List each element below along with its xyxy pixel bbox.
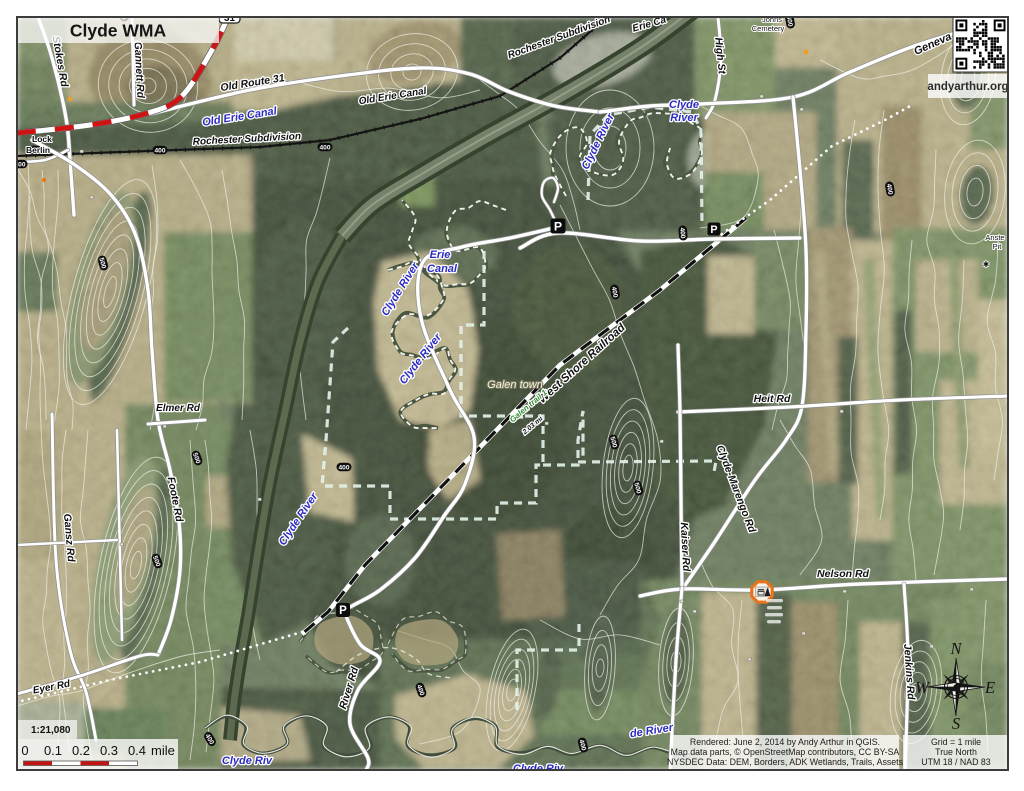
svg-text:Cemetery: Cemetery — [752, 24, 785, 33]
svg-text:Elmer Rd: Elmer Rd — [156, 403, 201, 414]
svg-text:Pit: Pit — [993, 242, 1003, 251]
svg-text:Galen town: Galen town — [487, 379, 543, 391]
svg-text:✱: ✱ — [983, 260, 990, 269]
svg-text:P: P — [710, 224, 717, 236]
svg-text:0.1: 0.1 — [44, 743, 62, 758]
svg-text:P: P — [339, 605, 347, 617]
svg-text:Anste: Anste — [985, 233, 1004, 242]
svg-text:E: E — [984, 678, 995, 697]
svg-text:andyarthur.org: andyarthur.org — [927, 81, 1008, 93]
svg-text:400: 400 — [338, 464, 349, 471]
svg-text:S: S — [952, 714, 960, 733]
svg-text:Canal: Canal — [427, 263, 458, 275]
svg-text:N: N — [949, 639, 962, 658]
svg-text:mile: mile — [151, 743, 175, 758]
svg-text:Clyde WMA: Clyde WMA — [70, 21, 167, 41]
svg-text:Clyde: Clyde — [669, 99, 699, 111]
svg-text:Berlin: Berlin — [26, 145, 50, 155]
svg-text:W: W — [915, 678, 930, 697]
svg-text:400: 400 — [319, 144, 330, 151]
svg-text:River: River — [670, 112, 698, 124]
svg-text:NYSDEC Data: DEM, Borders, ADK: NYSDEC Data: DEM, Borders, ADK Wetlands,… — [667, 757, 904, 767]
svg-text:Rendered: June 2, 2014 by And: Rendered: June 2, 2014 by Andy Arthur in… — [690, 737, 880, 747]
svg-text:1:21,080: 1:21,080 — [31, 725, 71, 736]
svg-text:0: 0 — [21, 743, 28, 758]
svg-text:400: 400 — [678, 227, 686, 239]
svg-text:0.3: 0.3 — [100, 743, 118, 758]
svg-text:Heit Rd: Heit Rd — [754, 393, 791, 405]
svg-text:Lock: Lock — [32, 134, 52, 144]
svg-text:UTM 18 / NAD 83: UTM 18 / NAD 83 — [921, 757, 991, 767]
svg-text:Nelson Rd: Nelson Rd — [817, 568, 870, 580]
svg-text:P: P — [554, 219, 562, 233]
svg-text:Erie: Erie — [430, 249, 451, 261]
svg-text:400: 400 — [154, 147, 165, 154]
svg-text:Clyde Riv: Clyde Riv — [222, 755, 273, 767]
svg-text:0.2: 0.2 — [72, 743, 90, 758]
svg-text:0.4: 0.4 — [128, 743, 146, 758]
svg-text:True North: True North — [935, 747, 977, 757]
svg-text:Grid = 1 mile: Grid = 1 mile — [931, 737, 981, 747]
svg-text:Map data parts, © OpenStreetMa: Map data parts, © OpenStreetMap contribu… — [671, 747, 900, 757]
